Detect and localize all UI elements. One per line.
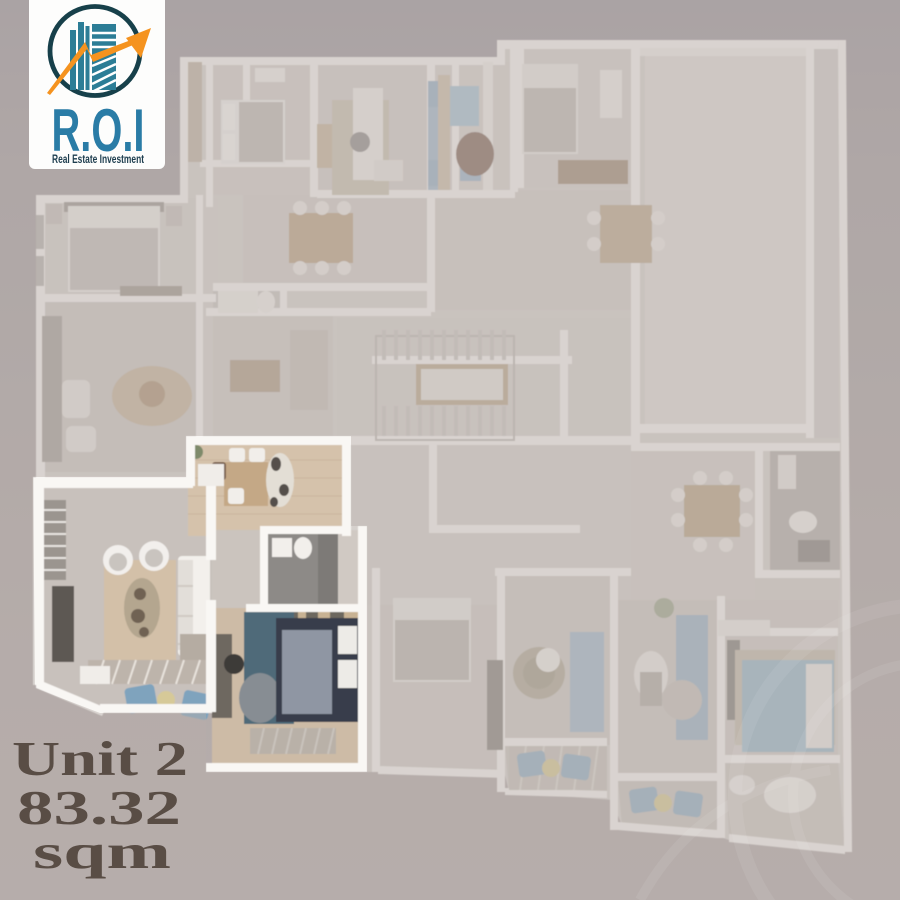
svg-text:sqm: sqm [33, 824, 171, 879]
svg-text:Real Estate Investment: Real Estate Investment [52, 152, 144, 166]
svg-text:Unit 2: Unit 2 [12, 731, 188, 786]
